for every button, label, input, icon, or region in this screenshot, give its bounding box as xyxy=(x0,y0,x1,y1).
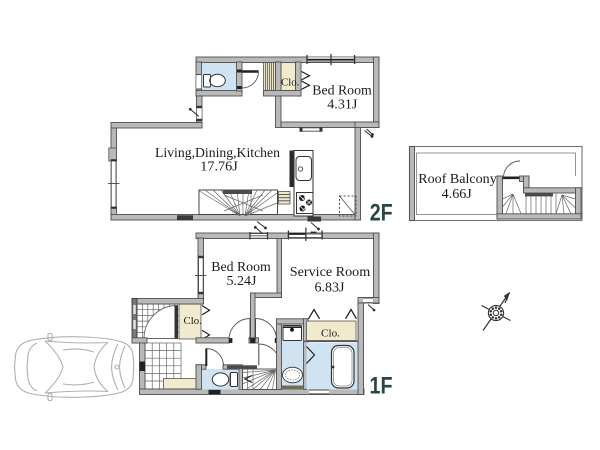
svg-text:1F: 1F xyxy=(370,373,393,400)
svg-text:Bed Room: Bed Room xyxy=(312,84,372,99)
svg-text:Bed Room: Bed Room xyxy=(211,260,271,275)
svg-text:Clo.: Clo. xyxy=(281,76,300,88)
svg-text:Roof Balcony: Roof Balcony xyxy=(418,172,497,187)
svg-text:4.31J: 4.31J xyxy=(327,98,358,113)
svg-text:2F: 2F xyxy=(370,200,393,227)
svg-text:6.83J: 6.83J xyxy=(315,281,346,296)
svg-text:4.66J: 4.66J xyxy=(442,187,473,202)
svg-text:Clo.: Clo. xyxy=(321,328,340,340)
svg-text:17.76J: 17.76J xyxy=(200,160,238,175)
svg-text:Clo.: Clo. xyxy=(184,315,203,327)
svg-text:5.24J: 5.24J xyxy=(227,274,258,289)
svg-text:Service Room: Service Room xyxy=(290,265,371,280)
